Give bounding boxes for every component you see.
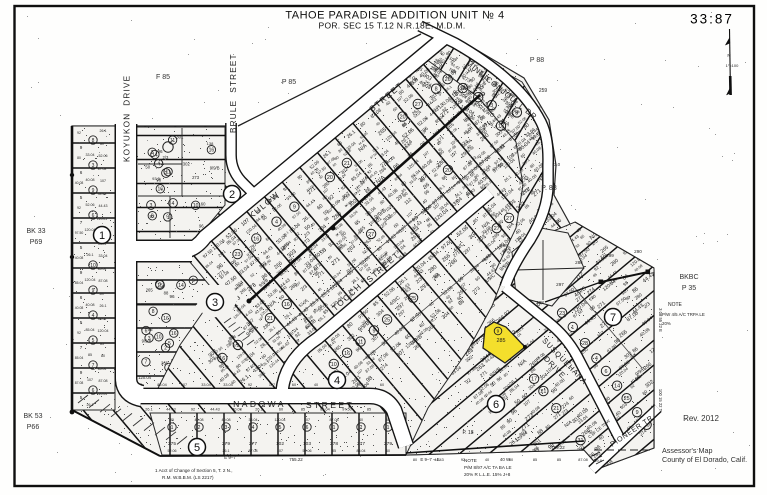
- svg-text:27: 27: [494, 226, 500, 232]
- svg-text:52.06: 52.06: [86, 203, 95, 207]
- svg-text:120.04: 120.04: [85, 278, 96, 282]
- svg-text:92: 92: [77, 331, 81, 335]
- svg-text:1 Acct of Change of Section 5,: 1 Acct of Change of Section 5, T. 2 N.,: [155, 468, 233, 473]
- svg-text:273: 273: [192, 175, 200, 180]
- svg-text:107: 107: [99, 292, 105, 296]
- svg-text:5: 5: [80, 195, 83, 200]
- svg-text:60: 60: [292, 383, 296, 387]
- svg-text:44.43: 44.43: [98, 192, 107, 196]
- svg-text:7: 7: [145, 360, 148, 366]
- svg-text:87.08: 87.08: [578, 458, 588, 462]
- svg-text:14: 14: [178, 283, 184, 289]
- svg-text:6: 6: [605, 369, 608, 375]
- svg-text:92: 92: [191, 408, 195, 412]
- svg-text:10: 10: [156, 335, 162, 341]
- svg-text:23: 23: [235, 252, 241, 258]
- svg-text:10: 10: [193, 203, 199, 209]
- svg-text:87.08: 87.08: [98, 167, 107, 171]
- svg-text:KOYUKON DRIVE: KOYUKON DRIVE: [123, 75, 132, 162]
- svg-text:8: 8: [152, 309, 155, 315]
- svg-text:F 85: F 85: [156, 74, 170, 81]
- svg-text:3: 3: [151, 150, 154, 156]
- svg-text:285: 285: [497, 338, 506, 344]
- svg-text:4: 4: [92, 313, 95, 319]
- svg-text:9: 9: [80, 270, 83, 275]
- svg-text:9: 9: [236, 343, 239, 349]
- svg-text:96: 96: [169, 294, 175, 299]
- svg-text:33.04: 33.04: [86, 153, 95, 157]
- svg-text:120.04: 120.04: [138, 375, 151, 380]
- svg-text:44.43: 44.43: [210, 408, 220, 412]
- svg-text:103: 103: [303, 441, 311, 447]
- svg-text:298: 298: [536, 300, 544, 305]
- svg-text:85.04: 85.04: [86, 328, 95, 332]
- svg-text:P 85: P 85: [282, 79, 296, 86]
- svg-text:P/M 8/97 A/C TA BA LE: P/M 8/97 A/C TA BA LE: [464, 465, 512, 470]
- svg-text:107: 107: [87, 378, 93, 382]
- svg-text:7: 7: [80, 345, 83, 350]
- svg-text:98: 98: [147, 327, 153, 332]
- svg-text:P 35: P 35: [682, 285, 696, 292]
- svg-text:85.04: 85.04: [75, 356, 84, 360]
- svg-text:9: 9: [80, 145, 83, 150]
- svg-text:26.1: 26.1: [100, 304, 107, 308]
- svg-text:301: 301: [176, 135, 184, 140]
- svg-text:60: 60: [201, 202, 206, 207]
- svg-text:BK 53: BK 53: [23, 413, 42, 420]
- svg-text:15: 15: [157, 283, 163, 289]
- svg-text:17: 17: [531, 377, 537, 383]
- svg-text:6: 6: [80, 295, 83, 300]
- svg-text:27: 27: [368, 232, 374, 238]
- svg-text:E 9–7 – S: E 9–7 – S: [420, 457, 439, 462]
- svg-text:33.04: 33.04: [201, 383, 211, 387]
- svg-text:9/9/B: 9/9/B: [142, 339, 152, 344]
- svg-text:16: 16: [209, 148, 215, 154]
- svg-text:755.22: 755.22: [289, 457, 303, 462]
- svg-text:21: 21: [267, 316, 273, 322]
- svg-text:14: 14: [614, 384, 620, 390]
- svg-text:1: 1: [99, 230, 105, 242]
- svg-text:NOTE: NOTE: [668, 302, 683, 308]
- svg-text:52.06: 52.06: [99, 154, 108, 158]
- svg-text:16: 16: [163, 316, 169, 322]
- svg-text:92: 92: [77, 206, 81, 210]
- svg-text:21: 21: [540, 389, 546, 395]
- svg-text:100 15 22 T: 100 15 22 T: [658, 389, 663, 412]
- svg-text:9: 9: [80, 370, 83, 375]
- svg-text:92: 92: [77, 131, 81, 135]
- svg-text:3: 3: [150, 203, 153, 209]
- svg-text:16: 16: [171, 331, 177, 337]
- svg-text:85: 85: [88, 353, 92, 357]
- svg-text:49.8: 49.8: [594, 458, 603, 463]
- svg-text:87.08: 87.08: [99, 279, 108, 283]
- svg-text:6: 6: [92, 213, 95, 219]
- svg-text:60: 60: [386, 449, 390, 453]
- svg-text:20: 20: [400, 115, 406, 121]
- svg-text:BKBC: BKBC: [679, 274, 698, 281]
- svg-text:Assessor's Map: Assessor's Map: [662, 446, 713, 455]
- svg-text:259: 259: [539, 88, 548, 94]
- svg-text:302: 302: [183, 162, 191, 167]
- svg-text:4: 4: [172, 201, 175, 207]
- svg-text:85: 85: [332, 449, 336, 453]
- svg-text:85: 85: [100, 342, 104, 346]
- svg-text:16: 16: [158, 187, 164, 193]
- svg-text:6: 6: [92, 388, 95, 394]
- svg-text:2: 2: [198, 425, 201, 431]
- svg-text:279: 279: [222, 441, 230, 447]
- svg-text:26.1: 26.1: [223, 449, 230, 453]
- svg-text:BK 33: BK 33: [26, 228, 45, 235]
- svg-text:40 W: 40 W: [500, 457, 511, 462]
- svg-text:7: 7: [610, 312, 616, 324]
- svg-text:10: 10: [90, 263, 96, 269]
- svg-text:3: 3: [92, 163, 95, 169]
- svg-text:85.04: 85.04: [98, 367, 107, 371]
- svg-text:297: 297: [556, 282, 564, 287]
- svg-text:7: 7: [92, 363, 95, 369]
- svg-text:NOTE: NOTE: [464, 458, 477, 463]
- svg-text:120.04: 120.04: [98, 329, 109, 333]
- svg-text:33.04: 33.04: [98, 317, 107, 321]
- svg-text:85: 85: [301, 408, 305, 412]
- svg-text:52.06: 52.06: [168, 449, 177, 453]
- svg-text:4: 4: [275, 220, 278, 226]
- svg-text:STREET: STREET: [306, 400, 354, 410]
- svg-text:27: 27: [415, 102, 421, 108]
- svg-text:107: 107: [304, 418, 310, 422]
- svg-text:N: N: [727, 53, 730, 58]
- svg-text:9/9/B: 9/9/B: [210, 166, 220, 171]
- svg-text:87.08: 87.08: [75, 381, 84, 385]
- svg-text:107: 107: [277, 449, 283, 453]
- svg-text:3: 3: [212, 297, 218, 309]
- svg-text:92: 92: [248, 383, 252, 387]
- svg-text:40.08: 40.08: [86, 178, 95, 182]
- svg-text:277: 277: [249, 441, 257, 447]
- svg-text:3.0: 3.0: [554, 162, 561, 167]
- svg-text:9: 9: [497, 329, 500, 335]
- svg-text:3: 3: [225, 425, 228, 431]
- svg-text:9: 9: [92, 188, 95, 194]
- svg-text:Rev. 2012: Rev. 2012: [683, 414, 719, 423]
- svg-text:R.M. W.B.B.M. (LS 2217): R.M. W.B.B.M. (LS 2217): [162, 475, 214, 480]
- svg-text:2: 2: [229, 189, 235, 201]
- svg-text:20% R L.L.E. 15% J+8: 20% R L.L.E. 15% J+8: [464, 472, 511, 477]
- svg-text:9: 9: [166, 215, 169, 221]
- svg-text:88: 88: [164, 291, 169, 296]
- svg-text:26.1: 26.1: [87, 253, 94, 257]
- svg-text:93.5: 93.5: [152, 176, 161, 181]
- svg-text:9: 9: [636, 410, 639, 416]
- svg-text:21: 21: [553, 406, 559, 412]
- svg-text:P66: P66: [27, 424, 40, 431]
- svg-text:20: 20: [445, 168, 451, 174]
- svg-text:85: 85: [557, 458, 561, 462]
- svg-text:8: 8: [92, 138, 95, 144]
- svg-text:44.43: 44.43: [99, 204, 108, 208]
- svg-text:85.04: 85.04: [357, 449, 366, 453]
- svg-text:96: 96: [199, 223, 204, 228]
- svg-text:33.04: 33.04: [249, 418, 258, 422]
- svg-text:County of El Dorado, Calif.: County of El Dorado, Calif.: [662, 455, 747, 464]
- svg-text:NADOWA: NADOWA: [233, 399, 286, 409]
- svg-text:290: 290: [634, 249, 642, 254]
- svg-text:E 9–7: E 9–7: [224, 455, 236, 460]
- svg-text:97.50: 97.50: [75, 231, 84, 235]
- svg-text:2: 2: [165, 171, 168, 177]
- svg-text:80: 80: [100, 142, 104, 146]
- svg-text:P. 88: P. 88: [541, 185, 557, 192]
- svg-text:1: 1: [387, 425, 390, 431]
- svg-text:107: 107: [357, 383, 363, 387]
- svg-text:60: 60: [380, 383, 384, 387]
- svg-text:3 08 55 22 E: 3 08 55 22 E: [658, 308, 663, 332]
- svg-text:6: 6: [80, 170, 83, 175]
- svg-text:107: 107: [100, 179, 106, 183]
- svg-text:P. 18: P. 18: [462, 430, 473, 436]
- svg-text:3: 3: [490, 103, 493, 109]
- svg-text:755.22: 755.22: [551, 445, 565, 450]
- svg-text:80: 80: [413, 458, 417, 462]
- svg-text:26.1: 26.1: [100, 129, 107, 133]
- svg-text:120.04: 120.04: [97, 392, 107, 396]
- svg-text:16: 16: [284, 302, 290, 308]
- svg-text:286: 286: [575, 260, 583, 265]
- svg-text:BRULE STREET: BRULE STREET: [229, 53, 238, 133]
- svg-text:6: 6: [493, 399, 499, 411]
- svg-text:P/W 4/5 A/C TRPA LE: P/W 4/5 A/C TRPA LE: [662, 312, 705, 317]
- svg-text:279: 279: [384, 441, 392, 447]
- svg-text:23: 23: [559, 311, 565, 317]
- svg-text:1: 1: [171, 425, 174, 431]
- svg-text:138: 138: [207, 141, 214, 146]
- svg-text:5: 5: [92, 338, 95, 344]
- svg-text:275: 275: [168, 441, 176, 447]
- svg-text:33:87: 33:87: [690, 12, 734, 27]
- svg-text:87.08: 87.08: [99, 379, 108, 383]
- svg-text:40.08: 40.08: [222, 418, 231, 422]
- svg-text:40.08: 40.08: [86, 303, 95, 307]
- svg-text:96: 96: [157, 149, 163, 154]
- svg-text:5: 5: [279, 425, 282, 431]
- svg-text:299: 299: [606, 253, 614, 258]
- svg-text:85: 85: [533, 458, 537, 462]
- svg-text:25: 25: [384, 317, 390, 323]
- svg-text:50: 50: [145, 165, 150, 170]
- svg-text:85.04: 85.04: [75, 281, 84, 285]
- svg-text:9: 9: [293, 205, 296, 211]
- svg-text:4: 4: [334, 375, 340, 387]
- svg-text:40.08: 40.08: [75, 306, 84, 310]
- svg-text:11: 11: [358, 340, 364, 346]
- svg-text:7: 7: [80, 220, 83, 225]
- svg-text:87.08: 87.08: [330, 418, 339, 422]
- svg-text:4: 4: [252, 425, 255, 431]
- svg-text:6: 6: [306, 425, 309, 431]
- svg-text:40: 40: [314, 383, 318, 387]
- svg-text:20: 20: [327, 175, 333, 181]
- svg-text:102: 102: [276, 441, 284, 447]
- svg-text:87.08: 87.08: [249, 449, 258, 453]
- svg-text:1″=100: 1″=100: [726, 63, 739, 68]
- svg-text:40: 40: [359, 418, 363, 422]
- svg-text:85: 85: [367, 408, 371, 412]
- svg-text:16: 16: [344, 351, 350, 357]
- svg-text:5: 5: [80, 320, 83, 325]
- svg-text:5: 5: [168, 341, 171, 347]
- svg-text:5: 5: [192, 278, 195, 284]
- svg-text:296: 296: [500, 243, 508, 248]
- svg-text:40: 40: [485, 458, 489, 462]
- svg-text:P 88: P 88: [530, 57, 544, 64]
- svg-text:P69: P69: [30, 239, 43, 246]
- svg-text:4: 4: [595, 356, 598, 362]
- svg-text:5: 5: [80, 245, 83, 250]
- svg-text:26.1: 26.1: [145, 408, 152, 412]
- svg-text:80: 80: [77, 156, 81, 160]
- svg-text:40.08: 40.08: [75, 256, 84, 260]
- svg-text:278: 278: [330, 441, 338, 447]
- svg-text:107: 107: [181, 383, 187, 387]
- svg-text:2: 2: [360, 425, 363, 431]
- svg-text:1: 1: [333, 425, 336, 431]
- svg-text:92: 92: [149, 214, 155, 219]
- svg-text:9: 9: [373, 328, 376, 334]
- svg-text:33.04: 33.04: [223, 383, 233, 387]
- svg-text:5: 5: [194, 442, 200, 454]
- svg-text:POR. SEC 15 T.12 N.R.18E. M.D.: POR. SEC 15 T.12 N.R.18E. M.D.M.: [318, 21, 465, 31]
- svg-text:120.04: 120.04: [275, 418, 286, 422]
